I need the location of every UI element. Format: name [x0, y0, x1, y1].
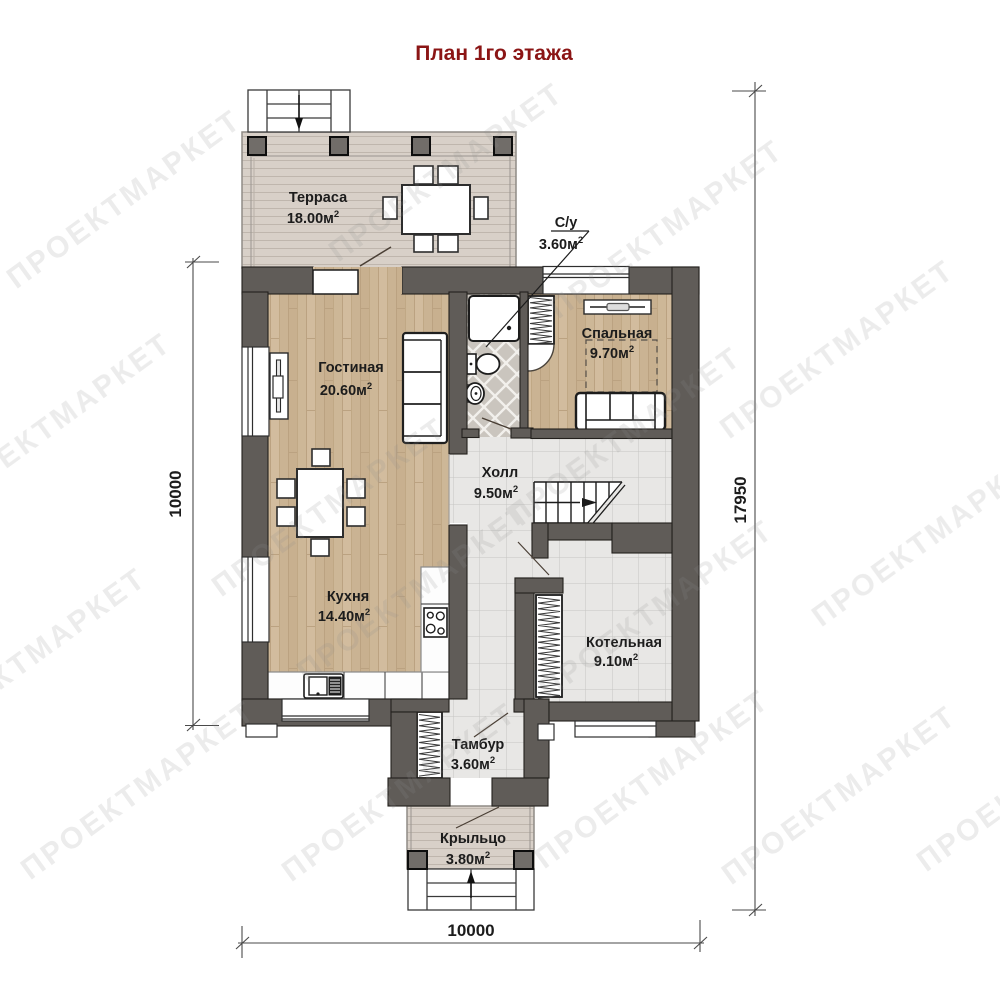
svg-text:С/у: С/у	[555, 215, 578, 231]
svg-text:Кухня: Кухня	[327, 589, 369, 605]
svg-text:3.60м2: 3.60м2	[539, 235, 583, 253]
svg-text:Гостиная: Гостиная	[318, 360, 384, 376]
svg-text:9.70м2: 9.70м2	[590, 344, 634, 362]
svg-text:10000: 10000	[447, 921, 494, 940]
svg-text:Спальная: Спальная	[582, 326, 653, 342]
svg-text:10000: 10000	[166, 470, 185, 517]
svg-text:3.80м2: 3.80м2	[446, 850, 490, 868]
svg-text:18.00м2: 18.00м2	[287, 209, 339, 227]
svg-text:20.60м2: 20.60м2	[320, 381, 372, 399]
svg-text:Холл: Холл	[482, 465, 518, 481]
svg-text:Крыльцо: Крыльцо	[440, 831, 506, 847]
svg-text:Терраса: Терраса	[289, 190, 348, 206]
svg-text:17950: 17950	[731, 476, 750, 523]
svg-text:План 1го этажа: План 1го этажа	[415, 42, 573, 65]
